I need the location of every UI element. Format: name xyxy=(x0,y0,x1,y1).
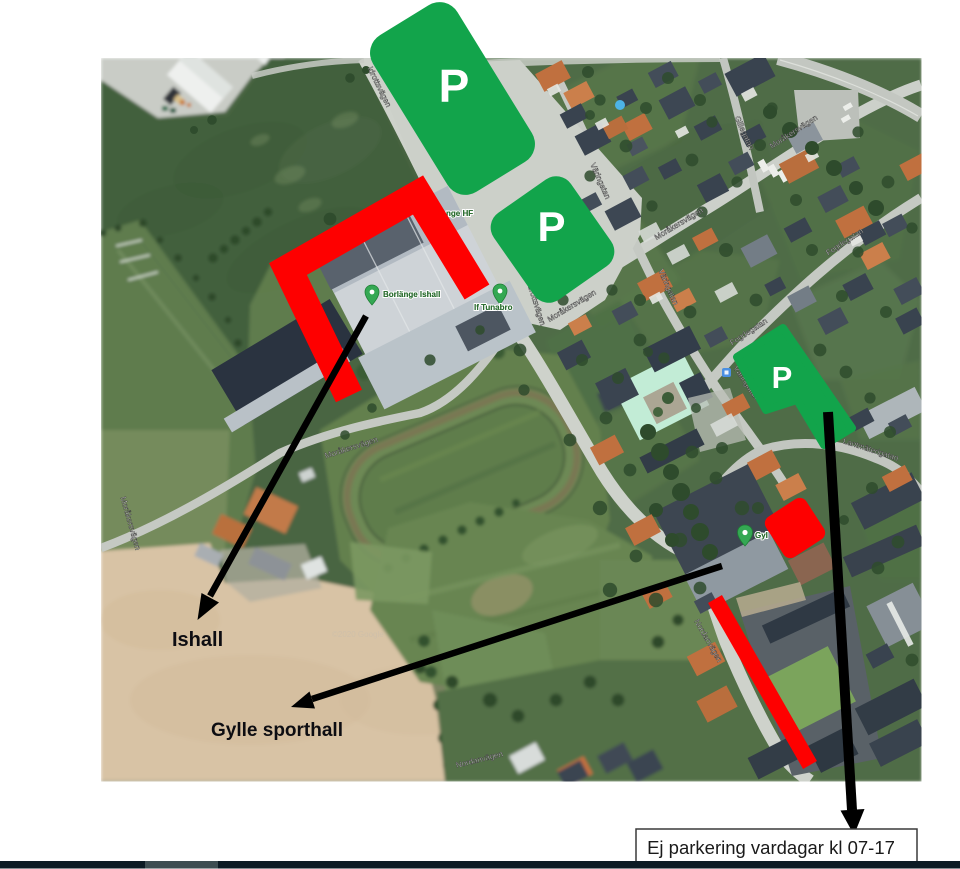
svg-text:P: P xyxy=(439,60,470,112)
svg-text:nge HF: nge HF xyxy=(446,209,473,218)
svg-text:Gyl: Gyl xyxy=(755,531,768,540)
svg-text:P: P xyxy=(537,203,565,250)
svg-text:If Tunabro: If Tunabro xyxy=(474,303,513,312)
svg-text:P: P xyxy=(772,360,793,395)
svg-text:Gylle sporthall: Gylle sporthall xyxy=(211,720,343,741)
svg-text:Borlänge Ishall: Borlänge Ishall xyxy=(383,290,440,299)
svg-text:©2020 Google: ©2020 Google xyxy=(332,630,384,639)
svg-text:Ej parkering vardagar kl 07-17: Ej parkering vardagar kl 07-17 xyxy=(647,837,895,858)
svg-text:Ishall: Ishall xyxy=(172,629,223,651)
